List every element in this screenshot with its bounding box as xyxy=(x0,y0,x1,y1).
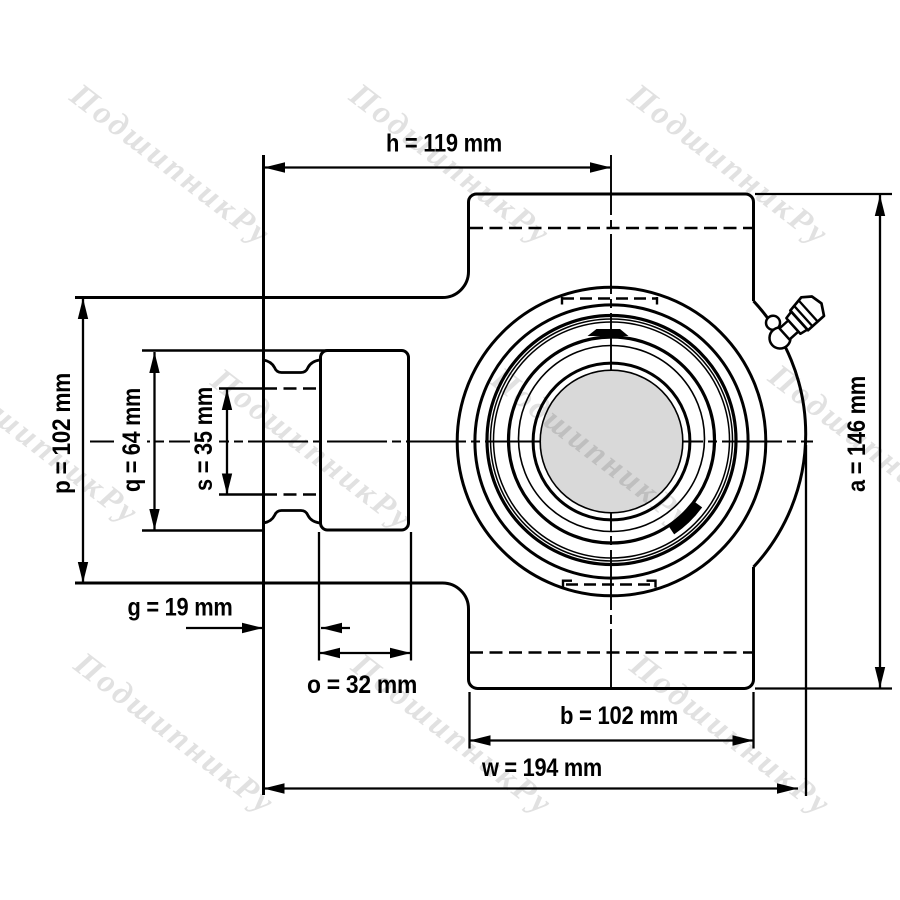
svg-text:b = 102 mm: b = 102 mm xyxy=(560,702,678,730)
svg-text:g = 19 mm: g = 19 mm xyxy=(128,594,233,622)
svg-text:q = 64 mm: q = 64 mm xyxy=(118,388,146,492)
svg-text:s = 35 mm: s = 35 mm xyxy=(190,387,218,491)
